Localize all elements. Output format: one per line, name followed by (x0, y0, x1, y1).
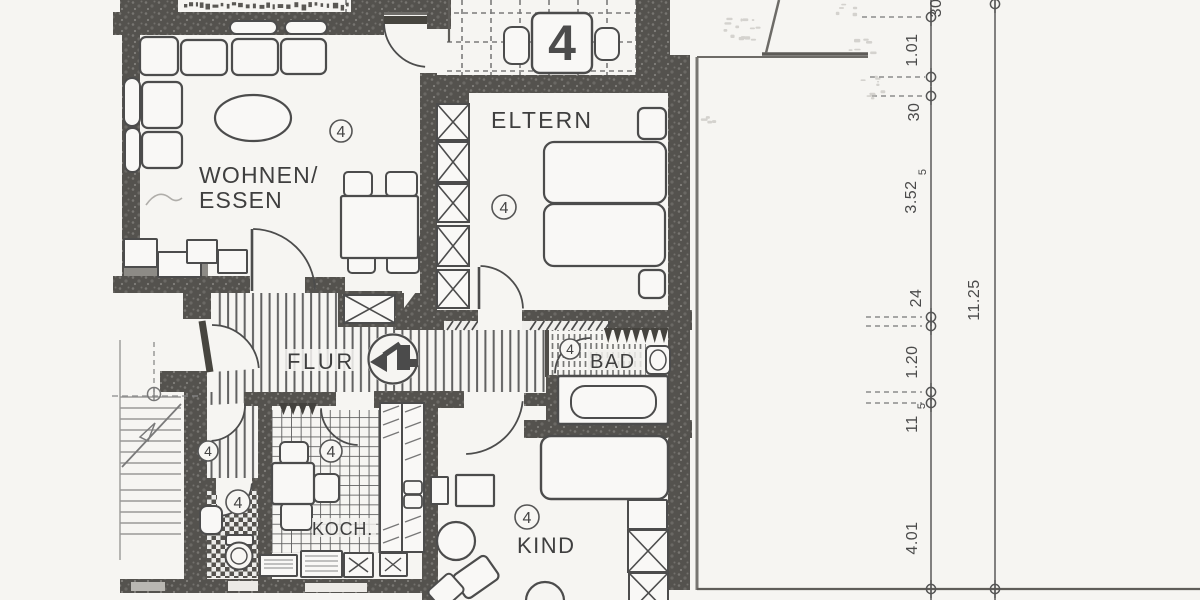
svg-text:30: 30 (906, 103, 923, 122)
svg-text:KIND: KIND (517, 533, 576, 558)
svg-text:5: 5 (917, 169, 929, 175)
svg-text:30: 30 (928, 0, 945, 17)
svg-text:FLUR: FLUR (287, 349, 355, 374)
svg-text:4: 4 (566, 341, 574, 357)
svg-text:11.25: 11.25 (966, 279, 983, 320)
svg-text:4: 4 (523, 510, 532, 527)
svg-text:1.20: 1.20 (904, 345, 921, 378)
svg-text:24: 24 (908, 289, 925, 308)
svg-text:3.52: 3.52 (903, 180, 920, 213)
svg-text:4.01: 4.01 (904, 521, 921, 554)
svg-text:5: 5 (916, 403, 928, 409)
svg-text:4: 4 (327, 444, 336, 461)
svg-text:4: 4 (548, 15, 576, 71)
svg-text:1.01: 1.01 (904, 33, 921, 66)
svg-text:KOCH.: KOCH. (312, 519, 373, 539)
svg-text:4: 4 (204, 443, 212, 459)
svg-text:4: 4 (234, 495, 243, 512)
svg-text:WOHNEN/: WOHNEN/ (199, 162, 319, 188)
svg-text:4: 4 (500, 200, 509, 217)
svg-text:4: 4 (337, 124, 346, 141)
svg-text:ELTERN: ELTERN (491, 107, 593, 133)
svg-text:11: 11 (904, 415, 921, 433)
svg-text:BAD: BAD (590, 351, 636, 373)
svg-text:ESSEN: ESSEN (199, 187, 283, 213)
